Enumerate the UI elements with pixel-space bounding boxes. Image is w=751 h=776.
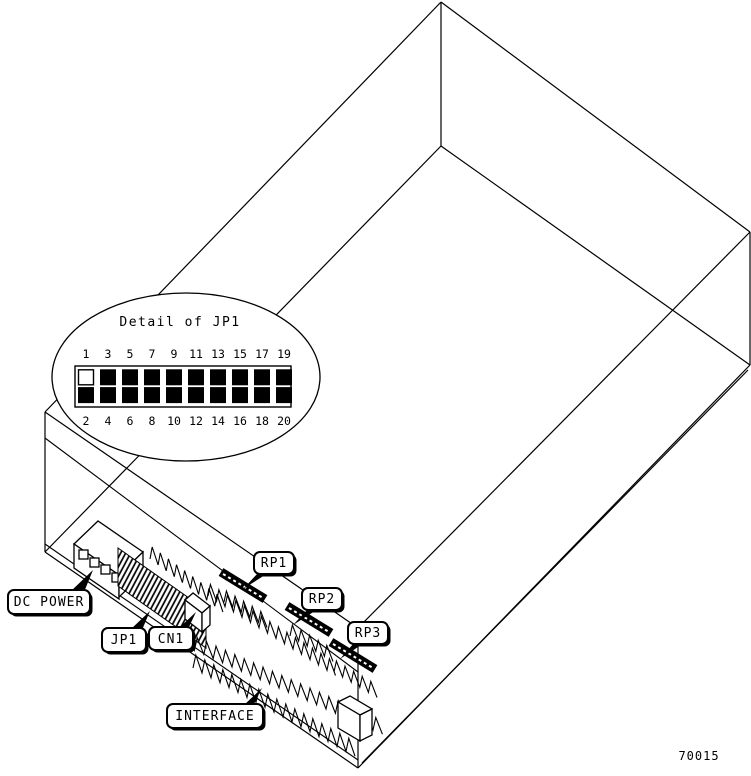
callout-rp1: RP1 bbox=[243, 552, 297, 589]
pin-square bbox=[189, 388, 204, 403]
pin-number: 16 bbox=[233, 414, 247, 428]
rp1-label: RP1 bbox=[261, 556, 287, 571]
figure-part-number: 70015 bbox=[678, 749, 719, 763]
pin-number: 11 bbox=[189, 347, 203, 361]
callout-jp1: JP1 bbox=[102, 611, 150, 655]
pin-number: 15 bbox=[233, 347, 247, 361]
jp1-label: JP1 bbox=[111, 633, 137, 648]
pin-number: 20 bbox=[277, 414, 291, 428]
pin-number: 9 bbox=[171, 347, 178, 361]
power-pin bbox=[101, 565, 110, 574]
detail-title: Detail of JP1 bbox=[119, 315, 240, 330]
pin-square bbox=[79, 388, 94, 403]
power-pin bbox=[79, 550, 88, 559]
pin-number: 5 bbox=[127, 347, 134, 361]
pin-number: 12 bbox=[189, 414, 203, 428]
pin-number: 10 bbox=[167, 414, 181, 428]
callout-rp2: RP2 bbox=[293, 588, 345, 625]
callout-rp3: RP3 bbox=[340, 622, 391, 659]
pin-square bbox=[145, 370, 160, 385]
dc-power-label: DC POWER bbox=[14, 595, 85, 610]
detail-balloon: Detail of JP1 1 bbox=[52, 293, 320, 461]
pin-square bbox=[145, 388, 160, 403]
pin-number: 2 bbox=[83, 414, 90, 428]
pin-number: 3 bbox=[105, 347, 112, 361]
pin-number: 4 bbox=[105, 414, 112, 428]
pin-square bbox=[211, 388, 226, 403]
pin-number: 1 bbox=[83, 347, 90, 361]
power-pin bbox=[90, 558, 99, 567]
rp3-resistor-pack bbox=[331, 642, 377, 697]
pin-square bbox=[167, 388, 182, 403]
rp1-resistor-pack bbox=[221, 572, 267, 627]
pin-square bbox=[233, 388, 248, 403]
pin-square bbox=[101, 370, 116, 385]
pin-square bbox=[211, 370, 226, 385]
pin-square bbox=[277, 370, 292, 385]
pin-number: 6 bbox=[127, 414, 134, 428]
pin-number: 19 bbox=[277, 347, 291, 361]
pin-number: 17 bbox=[255, 347, 269, 361]
pin-number: 7 bbox=[149, 347, 156, 361]
pin-number: 14 bbox=[211, 414, 225, 428]
cn1-label: CN1 bbox=[158, 632, 184, 647]
pin-square bbox=[167, 370, 182, 385]
pin-number: 18 bbox=[255, 414, 269, 428]
figure-canvas: Detail of JP1 1 bbox=[0, 0, 751, 776]
pin-square bbox=[277, 388, 292, 403]
pin-square bbox=[233, 370, 248, 385]
pin-number: 8 bbox=[149, 414, 156, 428]
pin-square bbox=[79, 370, 94, 385]
pin-number: 13 bbox=[211, 347, 225, 361]
pin-square bbox=[189, 370, 204, 385]
pin-square bbox=[123, 388, 138, 403]
rp2-label: RP2 bbox=[309, 592, 335, 607]
pin-square bbox=[101, 388, 116, 403]
pin-square bbox=[255, 370, 270, 385]
rp2-resistor-pack bbox=[287, 606, 333, 661]
rp3-label: RP3 bbox=[355, 626, 381, 641]
pin-square bbox=[255, 388, 270, 403]
drive-diagram: Detail of JP1 1 bbox=[0, 0, 751, 776]
pin-square bbox=[123, 370, 138, 385]
interface-label: INTERFACE bbox=[175, 709, 254, 724]
